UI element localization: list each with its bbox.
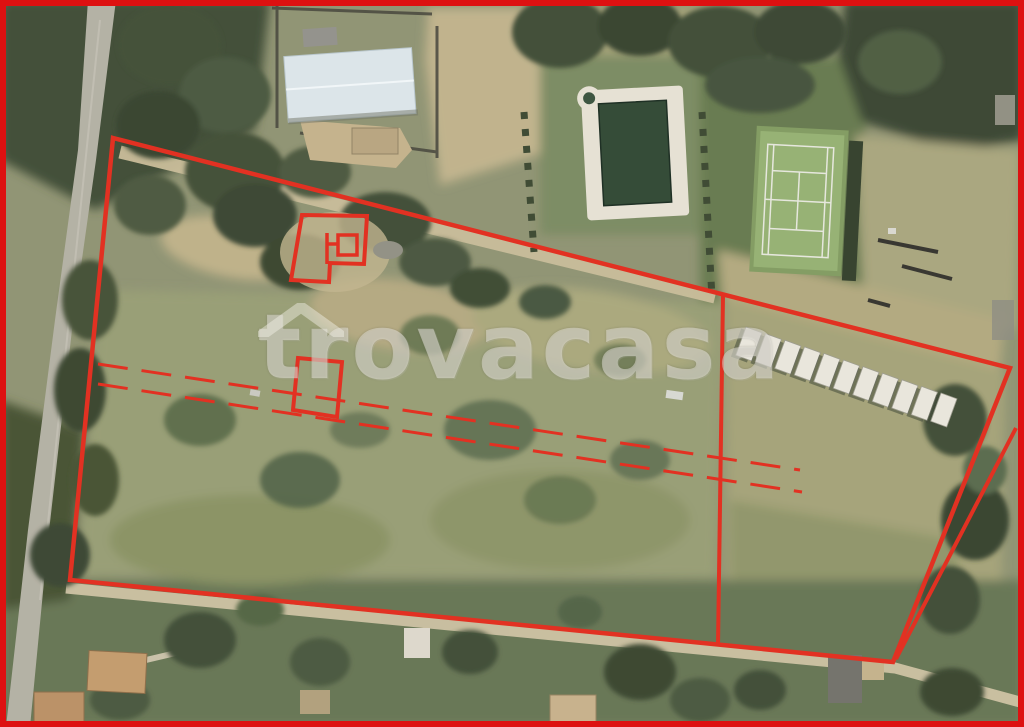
dashed-utility-line-1 <box>98 364 800 470</box>
dashed-utility-line-2 <box>98 384 802 492</box>
right-secondary-line <box>896 428 1016 659</box>
building-footprint-inner <box>327 233 357 264</box>
parcel-divider <box>718 295 723 646</box>
property-boundary-overlay <box>0 0 1024 727</box>
screenshot-root: trovacasa <box>0 0 1024 727</box>
small-plot-footprint <box>293 358 342 417</box>
